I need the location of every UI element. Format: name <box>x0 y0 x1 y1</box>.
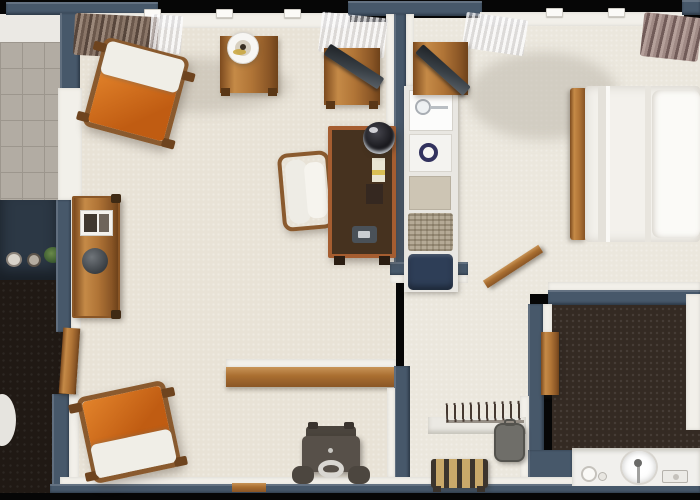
floorplan-scene <box>0 0 700 500</box>
table-lamp-gold-base <box>233 49 246 55</box>
bed-sheet-edge <box>645 86 651 242</box>
soap-tray-knob <box>673 474 679 480</box>
dark-chair-knob-left <box>308 422 318 429</box>
kitchenette-kettle-module <box>409 134 452 172</box>
vanity-cup-small <box>598 472 607 481</box>
bottom-center-wall <box>394 366 410 492</box>
sink-faucet-arm <box>430 106 448 109</box>
bottom-black-band <box>0 493 700 500</box>
desk-mirror-orb <box>363 122 395 154</box>
table-lamp-finial <box>240 44 246 50</box>
bed-pillow-section <box>652 90 700 238</box>
dark-desk-chair <box>292 426 370 490</box>
armchair-bottom-left <box>76 380 182 485</box>
cabinet-photo-tray <box>80 210 113 236</box>
patio-upper-wall-face <box>0 14 64 44</box>
dark-chair-arm-right <box>348 466 370 484</box>
desk-dark-box <box>366 184 383 204</box>
kitchenette-unit <box>404 86 458 292</box>
desk-papers-yellow <box>372 170 385 175</box>
window-frame-tab-5 <box>608 8 625 17</box>
dark-chair-button <box>328 448 333 453</box>
dark-chair-white-handle <box>318 460 344 478</box>
suitcase-handle <box>504 419 516 426</box>
window-drapes-bedroom <box>640 12 700 62</box>
tv-stand-living-leg-left <box>326 101 335 109</box>
dressing-room-dark-carpet <box>552 300 700 452</box>
vanity-faucet-stem <box>637 466 640 483</box>
cabinet-photo-light <box>99 214 109 232</box>
window-frame-tab-3 <box>284 9 301 18</box>
side-table-leg-left <box>221 88 230 96</box>
luggage-rack-leg-right <box>477 486 485 492</box>
bed-sheet-fold-shadow <box>598 86 606 242</box>
armchair-top-left-leg-2 <box>181 70 196 82</box>
cabinet-knob-bottom <box>111 310 121 319</box>
side-table-leg-right <box>268 88 277 96</box>
sink-faucet-ring <box>415 99 431 115</box>
vanity-cup <box>581 466 597 482</box>
folding-luggage-rack <box>431 459 488 488</box>
closet-suitcase <box>494 423 525 462</box>
planter-plate-small <box>27 253 41 267</box>
left-wall-upper-face <box>58 88 82 200</box>
kitchenette-microwave-module <box>409 176 451 210</box>
window-frame-tab-2 <box>216 9 233 18</box>
dressing-top-wall <box>548 290 700 305</box>
bottom-center-wall-face <box>387 388 395 478</box>
dressing-door-leaf <box>541 332 559 395</box>
window-frame-tab-4 <box>546 8 563 17</box>
dark-chair-knob-right <box>344 422 354 429</box>
armchair-bottom-left-leg-1 <box>68 402 83 414</box>
kettle-top-ring <box>419 143 438 162</box>
top-wall-right-cap <box>682 0 700 15</box>
kitchenette-sink-module <box>409 90 453 131</box>
patio-stone-tiles <box>0 42 64 202</box>
patio-planter-ledge <box>0 200 58 280</box>
dark-chair-arm-left <box>292 466 314 484</box>
desk-leg-left <box>334 256 345 265</box>
tv-stand-living-leg-right <box>369 101 378 109</box>
desk-chair-seat-cushion <box>304 161 329 219</box>
bottom-door-threshold <box>232 483 266 492</box>
cabinet-photo-dark <box>84 214 97 232</box>
cabinet-knob-top <box>111 194 121 203</box>
desk-telephone <box>352 226 377 243</box>
cabinet-round-bowl <box>82 248 108 274</box>
kitchenette-navy-bin <box>408 254 453 290</box>
kitchenette-wicker-basket <box>408 213 453 251</box>
left-wall-cabinet <box>72 196 120 318</box>
window-sheer-left <box>149 14 184 54</box>
right-edge-wall-face <box>686 294 700 430</box>
luggage-rack-leg-left <box>433 486 441 492</box>
dressing-left-wall-face <box>543 304 552 334</box>
vanity-faucet <box>634 459 642 467</box>
left-wall-mid <box>56 200 72 332</box>
vanity-soap-tray <box>662 470 688 483</box>
bed-sheet-fold-highlight <box>606 86 610 242</box>
desk-chair <box>277 150 336 232</box>
partition-wood-ledge <box>226 367 396 387</box>
desk-telephone-keys <box>358 231 370 238</box>
desk-mirror-orb-glint <box>369 127 378 133</box>
desk-leg-right <box>379 256 390 265</box>
top-wall-center <box>348 1 482 16</box>
planter-plate-large <box>6 252 22 267</box>
